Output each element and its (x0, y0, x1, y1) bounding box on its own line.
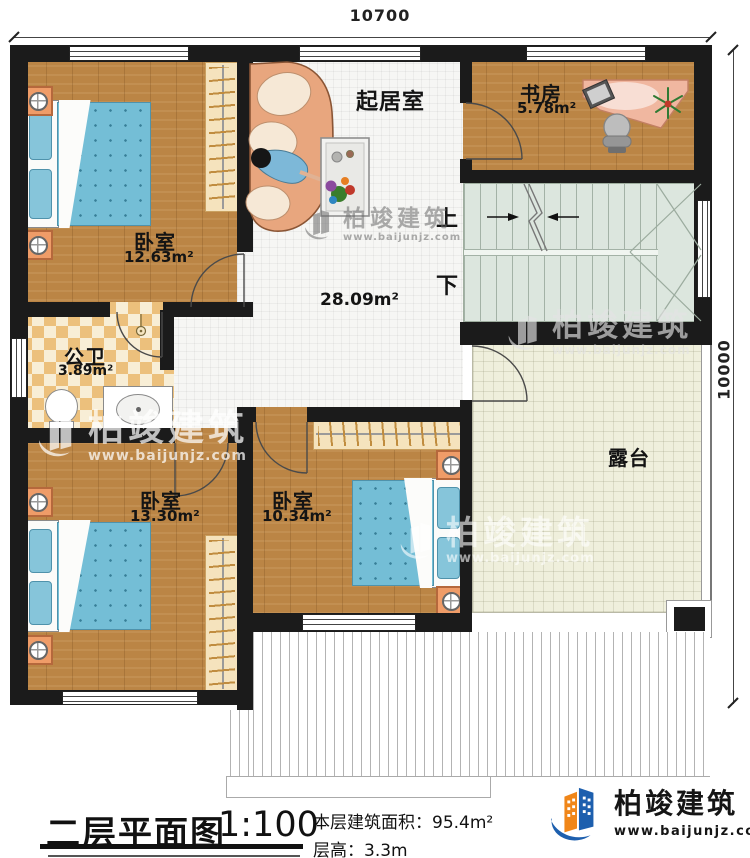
roof-hatch-left (230, 710, 253, 776)
bedroom-bottom-middle-area: 10.34m² (262, 507, 332, 525)
floor-plan-canvas: 10700 10000 上 下 (0, 0, 750, 858)
floor-area-label: 本层建筑面积： (313, 813, 432, 833)
bathroom-area: 3.89m² (58, 363, 113, 379)
lower-roof-outline (226, 776, 491, 798)
door-arc-bedroom2 (175, 443, 228, 496)
roof-hatch-main (253, 632, 710, 777)
door-arc-bedroom1 (191, 254, 244, 307)
brand-logo: 柏竣建筑 www.baijunjz.com (548, 782, 750, 846)
floor-area-text: 本层建筑面积：95.4m² (313, 808, 493, 833)
living-room-label: 起居室 (356, 84, 425, 116)
title-underline-thick (40, 844, 303, 849)
floor-height-label: 层高： (313, 841, 364, 858)
door-arc-study (466, 103, 522, 159)
brand-logo-icon (548, 782, 606, 846)
stair-break-line (487, 184, 579, 251)
title-underline-thin (48, 855, 300, 857)
living-room-area: 28.09m² (320, 290, 399, 310)
sofa (245, 62, 333, 231)
bedroom-bottom-left-area: 13.30m² (130, 507, 200, 525)
bedroom-top-left-area: 12.63m² (124, 248, 194, 266)
study-area: 5.78m² (517, 99, 576, 117)
coffee-table (321, 138, 369, 216)
brand-website: www.baijunjz.com (614, 824, 750, 839)
terrace-label: 露台 (608, 442, 650, 471)
office-chair (603, 114, 631, 153)
stair-landing-lines (630, 184, 701, 321)
plan-scale: 1:100 (218, 805, 319, 845)
floor-height-value: 3.3m (364, 841, 408, 858)
light-pull-icon (137, 314, 146, 336)
door-arc-bedroom3 (256, 422, 307, 473)
door-arc-terrace (472, 346, 527, 401)
floor-area-value: 95.4m² (432, 813, 493, 833)
floor-height-text: 层高：3.3m (313, 836, 408, 858)
brand-name: 柏竣建筑 (614, 790, 750, 818)
